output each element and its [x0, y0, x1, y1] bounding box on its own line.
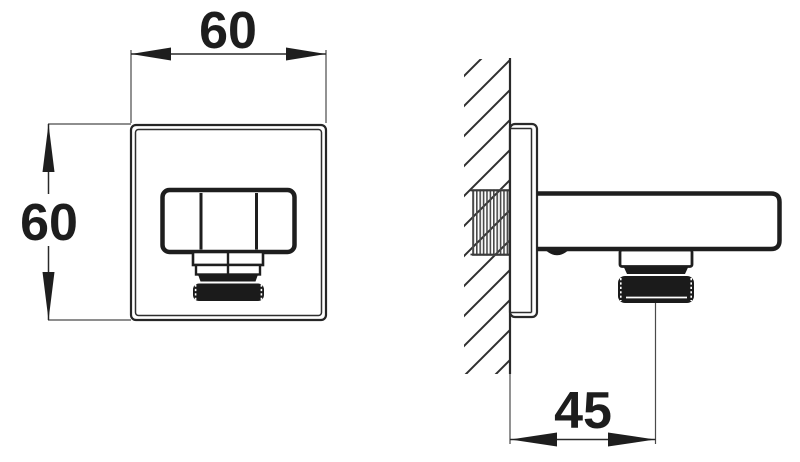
connector-collar-side [624, 268, 688, 275]
threaded-inlet [471, 190, 510, 256]
connector-collar-front [198, 275, 258, 282]
knurled-connector-side [618, 276, 694, 303]
knurled-connector-front [193, 284, 264, 302]
wall-plate-side [510, 124, 537, 317]
width-dimension-label: 60 [199, 2, 257, 60]
background [0, 0, 800, 462]
hex-nut-front [163, 190, 295, 252]
offset-dimension-label: 45 [554, 382, 612, 440]
technical-drawing-canvas: 60 60 [0, 0, 800, 462]
drawing-svg: 60 60 [0, 0, 800, 462]
outlet-neck-side [620, 250, 692, 267]
height-dimension-label: 60 [20, 194, 78, 252]
